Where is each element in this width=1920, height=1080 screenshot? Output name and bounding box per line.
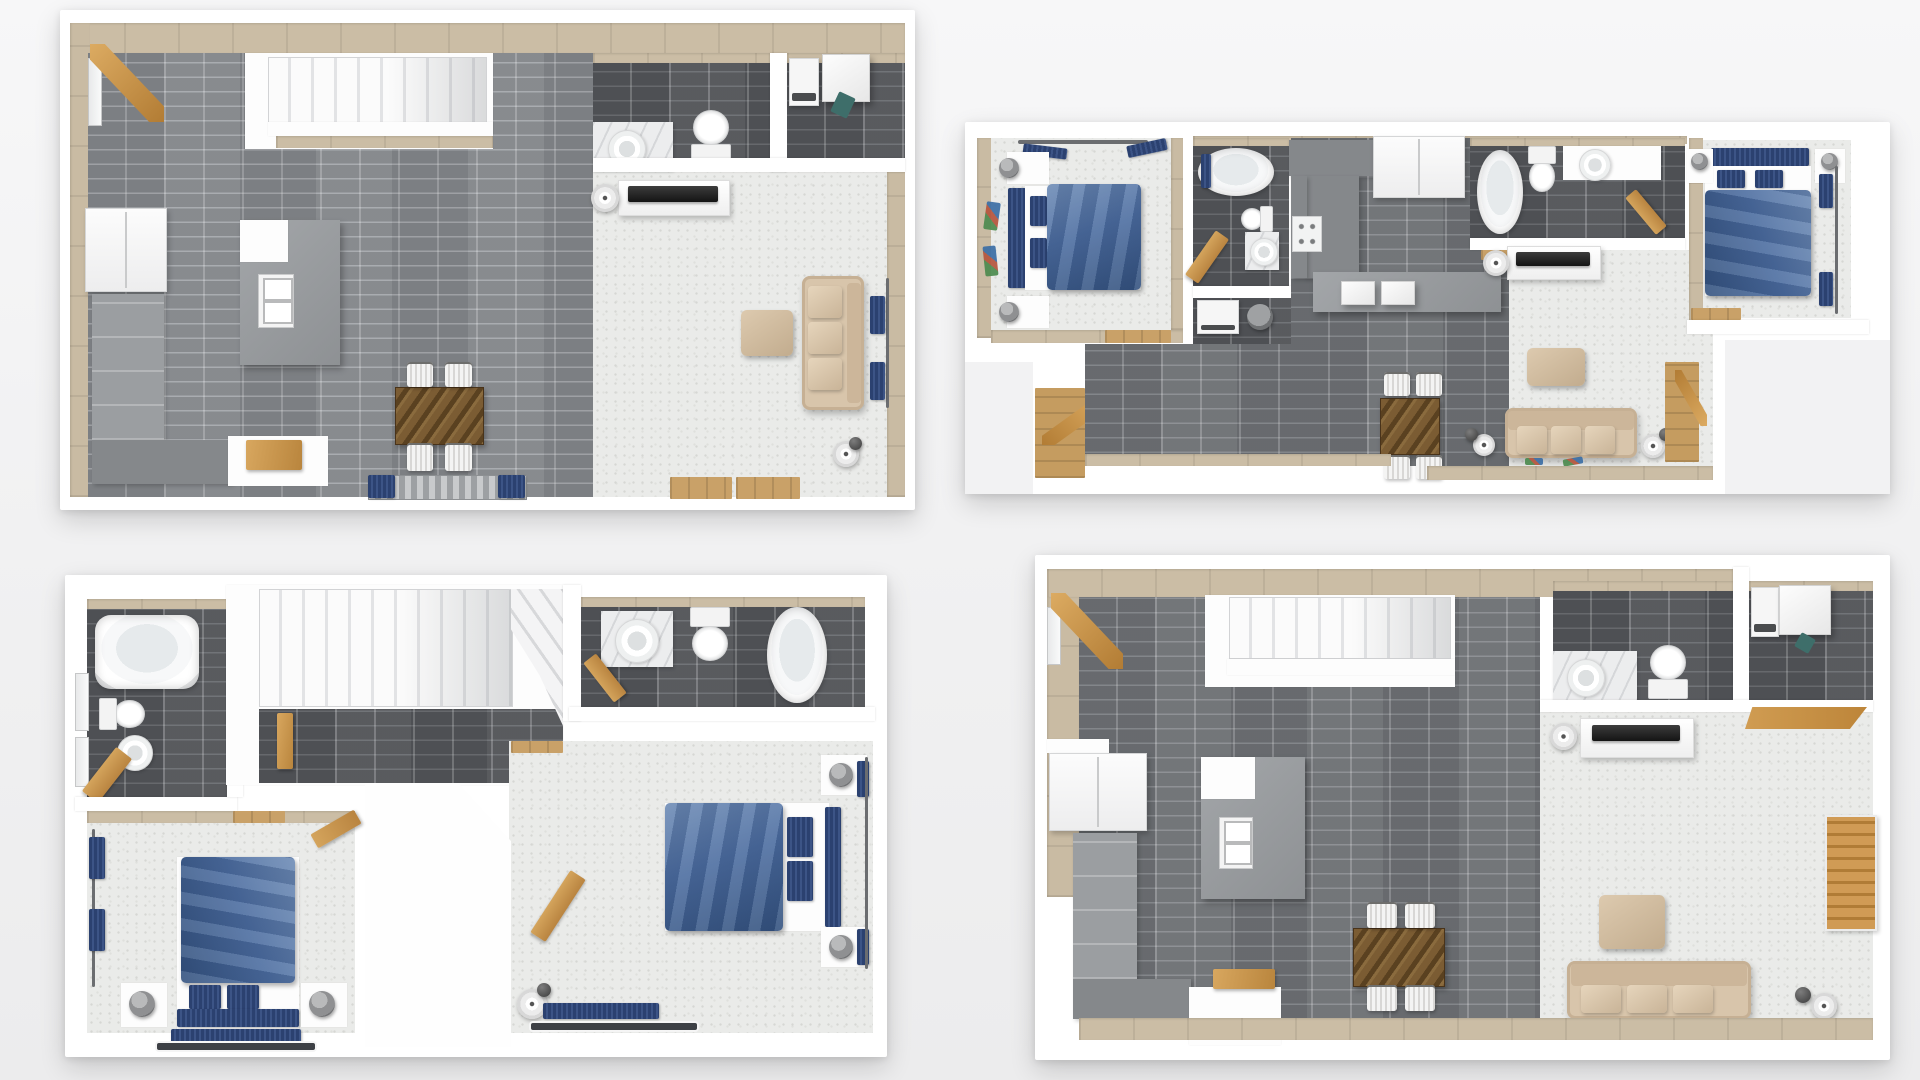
television bbox=[628, 186, 718, 202]
staircase bbox=[259, 589, 513, 707]
wood-border bbox=[1470, 138, 1685, 146]
dining-chair bbox=[445, 362, 472, 387]
ottoman bbox=[741, 310, 793, 356]
door-mat bbox=[736, 477, 800, 499]
interior-wall bbox=[1687, 320, 1869, 334]
door-panel bbox=[277, 713, 293, 769]
storage-box bbox=[1779, 585, 1831, 635]
seat-cushion bbox=[808, 358, 842, 390]
stair-threshold bbox=[276, 136, 493, 148]
wood-border bbox=[1193, 138, 1289, 146]
island-sink-cabinet bbox=[1201, 757, 1255, 799]
fridge bbox=[1373, 136, 1465, 198]
table-lamp bbox=[591, 184, 619, 212]
speaker-ball bbox=[1795, 987, 1811, 1003]
radiator bbox=[89, 837, 105, 879]
pillow bbox=[227, 985, 259, 1009]
bathtub bbox=[1477, 150, 1523, 234]
radiator bbox=[870, 362, 885, 400]
entry-wood-floor bbox=[1079, 1018, 1873, 1040]
towel bbox=[1201, 154, 1211, 188]
kitchen-counter bbox=[1073, 979, 1191, 1019]
floor-plan-top-right[interactable] bbox=[965, 122, 1890, 494]
fridge bbox=[1049, 753, 1147, 831]
seat-cushion bbox=[1673, 985, 1713, 1013]
threshold bbox=[511, 741, 563, 753]
threshold bbox=[1691, 308, 1741, 320]
wood-border bbox=[87, 599, 227, 609]
void-opening bbox=[365, 783, 511, 1047]
vanity-top bbox=[1563, 146, 1661, 180]
curtain-rail bbox=[1018, 140, 1148, 144]
wood-border bbox=[593, 53, 770, 63]
floor-lamp bbox=[1811, 993, 1837, 1019]
seat-cushion bbox=[808, 286, 842, 318]
duvet bbox=[665, 803, 783, 931]
floor-plan-top-left[interactable] bbox=[60, 10, 915, 510]
door-mat bbox=[670, 477, 732, 499]
bathtub bbox=[95, 615, 199, 689]
window bbox=[75, 737, 89, 787]
threshold bbox=[233, 811, 285, 823]
wood-border bbox=[581, 597, 865, 607]
floor-plan-bottom-right[interactable] bbox=[1035, 555, 1890, 1060]
runner-rug bbox=[531, 1023, 697, 1030]
hall-floor bbox=[1085, 344, 1291, 466]
seat-cushion bbox=[1517, 426, 1547, 454]
table-lamp bbox=[1483, 250, 1509, 276]
dining-chair bbox=[1367, 985, 1397, 1011]
dining-table bbox=[1353, 928, 1445, 987]
threshold bbox=[1105, 330, 1171, 343]
ottoman bbox=[1527, 348, 1585, 386]
wash-basin bbox=[1250, 238, 1278, 266]
dining-chair bbox=[1405, 985, 1435, 1011]
toilet bbox=[1527, 146, 1555, 192]
bedside-lamp bbox=[829, 763, 853, 787]
radiator bbox=[1819, 174, 1833, 208]
toilet bbox=[1647, 645, 1687, 699]
speaker-ball bbox=[1465, 428, 1478, 441]
toilet bbox=[1241, 206, 1273, 230]
television bbox=[1592, 725, 1680, 741]
interior-wall bbox=[593, 158, 905, 172]
duvet bbox=[181, 857, 295, 983]
speaker-ball bbox=[849, 437, 862, 450]
building-cutout bbox=[965, 362, 1033, 494]
headboard bbox=[177, 1009, 299, 1027]
tall-cabinet bbox=[1073, 833, 1137, 979]
headboard bbox=[1008, 188, 1026, 288]
television bbox=[1516, 252, 1590, 266]
wash-basin bbox=[1567, 659, 1605, 697]
slat-bench bbox=[1825, 815, 1877, 931]
dining-chair bbox=[1384, 372, 1410, 396]
rug-end bbox=[498, 475, 525, 498]
floor-plan-gallery bbox=[0, 0, 1920, 1080]
pillow bbox=[1030, 238, 1047, 268]
pillow bbox=[787, 861, 813, 901]
interior-wall bbox=[75, 797, 237, 811]
table-lamp bbox=[1550, 723, 1577, 750]
speaker-ball bbox=[537, 983, 551, 997]
washing-machine bbox=[1197, 300, 1239, 334]
bathtub bbox=[767, 607, 827, 703]
wash-basin bbox=[1579, 149, 1611, 181]
bench bbox=[543, 1003, 659, 1019]
runner-rug bbox=[157, 1043, 315, 1050]
dining-chair bbox=[407, 443, 433, 471]
pillow bbox=[1755, 170, 1783, 188]
serving-board bbox=[1341, 281, 1375, 305]
toilet bbox=[690, 110, 730, 164]
stair-landing bbox=[1227, 659, 1455, 675]
toilet bbox=[99, 697, 145, 729]
interior-wall bbox=[770, 53, 787, 172]
wood-border bbox=[887, 172, 905, 497]
seat-cushion bbox=[1627, 985, 1667, 1013]
stair-landing bbox=[268, 122, 493, 136]
duvet bbox=[1705, 190, 1811, 296]
dining-table bbox=[395, 387, 484, 445]
radiator bbox=[89, 909, 105, 951]
radiator bbox=[1819, 272, 1833, 306]
oven bbox=[258, 274, 294, 328]
bedside-lamp bbox=[829, 935, 853, 959]
curtain-rail bbox=[865, 757, 868, 969]
dining-chair bbox=[407, 362, 433, 387]
bedside-lamp bbox=[309, 991, 335, 1017]
wood-border bbox=[1553, 581, 1733, 591]
seat-cushion bbox=[1551, 426, 1581, 454]
island-sink-cabinet bbox=[240, 220, 288, 262]
entry-wood-floor bbox=[1085, 454, 1391, 466]
staircase bbox=[268, 57, 487, 123]
floor-plan-bottom-left[interactable] bbox=[65, 575, 887, 1057]
curtain-rail bbox=[886, 278, 889, 408]
curtain-rail bbox=[1835, 166, 1838, 314]
staircase bbox=[1229, 597, 1451, 659]
serving-board bbox=[1381, 281, 1415, 305]
washing-machine bbox=[789, 58, 819, 106]
seat-cushion bbox=[1585, 426, 1615, 454]
dining-chair bbox=[1367, 902, 1397, 928]
interior-wall bbox=[1733, 567, 1749, 701]
washing-machine bbox=[1751, 587, 1779, 637]
cutting-board bbox=[1213, 969, 1275, 989]
wood-border bbox=[87, 811, 355, 823]
dining-table bbox=[1380, 398, 1440, 455]
wood-border bbox=[70, 23, 905, 53]
pillow bbox=[189, 985, 221, 1009]
pillow bbox=[787, 817, 813, 857]
building-cutout bbox=[1725, 340, 1890, 494]
dining-chair bbox=[1416, 372, 1442, 396]
headboard bbox=[825, 807, 841, 927]
ottoman bbox=[1599, 895, 1665, 949]
interior-wall bbox=[563, 585, 581, 721]
cooktop bbox=[1292, 216, 1322, 252]
seat-cushion bbox=[808, 322, 842, 354]
tall-cabinet bbox=[92, 294, 164, 440]
pillow bbox=[1030, 196, 1047, 226]
dining-chair bbox=[445, 443, 472, 471]
entry-wood-floor bbox=[1427, 466, 1713, 480]
wood-border bbox=[1171, 138, 1183, 330]
corner-shelf bbox=[1745, 707, 1867, 729]
bench bbox=[171, 1029, 301, 1043]
wash-basin bbox=[615, 619, 659, 663]
wall-shelf bbox=[1047, 739, 1109, 753]
interior-wall bbox=[569, 707, 875, 721]
toilet bbox=[689, 607, 729, 661]
oven bbox=[1219, 817, 1253, 869]
bedside-lamp bbox=[999, 158, 1019, 178]
pillow bbox=[1717, 170, 1745, 188]
duvet bbox=[1047, 184, 1141, 290]
floor-decor bbox=[1525, 458, 1543, 465]
interior-wall bbox=[1193, 286, 1291, 298]
bedside-lamp bbox=[129, 991, 155, 1017]
bedside-lamp bbox=[1691, 153, 1708, 170]
headboard bbox=[1711, 148, 1809, 166]
rug-end bbox=[368, 475, 395, 498]
cutting-board bbox=[246, 440, 302, 470]
window bbox=[75, 673, 89, 731]
seat-cushion bbox=[1581, 985, 1621, 1013]
radiator bbox=[870, 296, 885, 334]
dining-chair bbox=[1405, 902, 1435, 928]
bedside-lamp bbox=[999, 302, 1019, 322]
laundry-basket bbox=[1247, 304, 1273, 330]
kitchen-counter bbox=[1289, 140, 1373, 176]
fridge bbox=[85, 208, 167, 292]
kitchen-counter bbox=[92, 440, 232, 484]
